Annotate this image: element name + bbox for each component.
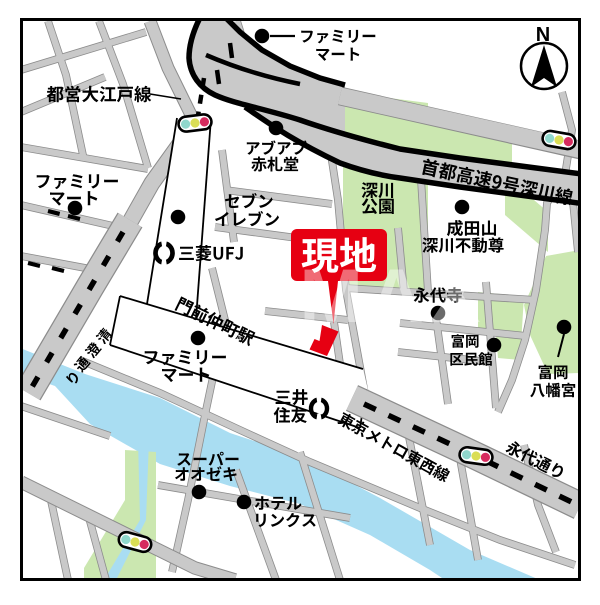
svg-text:N: N [536,24,550,46]
svg-text:MAX: MAX [300,254,487,339]
